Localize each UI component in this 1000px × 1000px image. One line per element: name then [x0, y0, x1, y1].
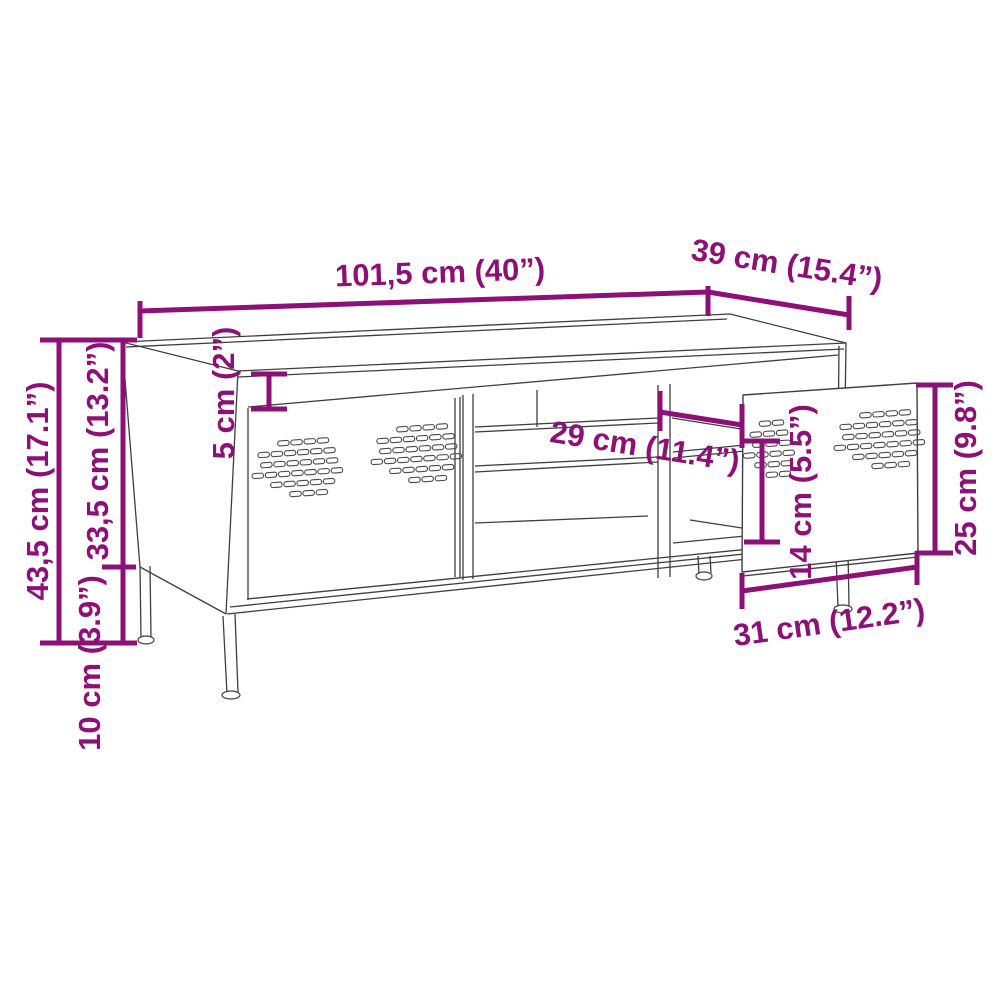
cabinet-left-door: [248, 397, 460, 600]
front-left-leg: [222, 614, 240, 699]
dim-depth-top-label: 39 cm (15.4”): [689, 232, 885, 297]
cabinet-detached-right-door: [742, 383, 918, 576]
dim-height-total-label: 43,5 cm (17.1”): [20, 382, 55, 601]
dim-top-rail: 5 cm (2”): [206, 327, 287, 460]
dim-top-rail-label: 5 cm (2”): [206, 327, 241, 460]
dim-shelf-clearance-label: 14 cm (5.5”): [783, 404, 818, 580]
perforation-pattern: [250, 437, 345, 500]
dim-width-top: 101,5 cm (40”): [140, 251, 708, 338]
dim-height-body-label: 33,5 cm (13.2”): [80, 342, 115, 561]
cabinet-middle-divider: [463, 394, 473, 580]
perforation-pattern: [369, 423, 464, 486]
product-dimension-diagram: 101,5 cm (40”) 39 cm (15.4”) 43,5 cm (17…: [0, 0, 1000, 1000]
dim-door-height-label: 25 cm (9.8”): [948, 380, 983, 556]
dim-door-height: 25 cm (9.8”): [916, 380, 983, 556]
dim-compartment-width: 29 cm (11.4”): [548, 391, 742, 479]
dim-width-top-label: 101,5 cm (40”): [334, 251, 545, 293]
back-left-leg: [138, 566, 154, 644]
dim-door-width-label: 31 cm (12.2”): [731, 592, 927, 654]
dim-depth-top: 39 cm (15.4”): [689, 232, 885, 330]
diagram-svg: 101,5 cm (40”) 39 cm (15.4”) 43,5 cm (17…: [0, 0, 1000, 1000]
back-right-leg: [696, 556, 712, 580]
dim-leg-height-label: 10 cm (3.9”): [72, 575, 107, 751]
